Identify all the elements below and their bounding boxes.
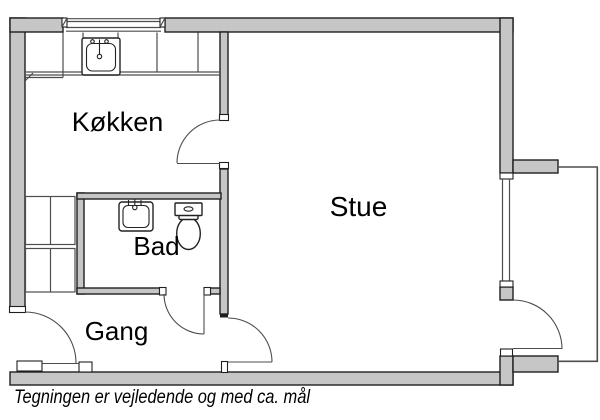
room-label-living-room: Stue bbox=[330, 191, 388, 222]
balcony-railing bbox=[558, 167, 598, 362]
kitchen-door bbox=[177, 115, 229, 169]
wall-stub-balcony-top bbox=[513, 160, 558, 173]
toilet-bowl bbox=[177, 218, 201, 250]
room-label-kitchen: Køkken bbox=[72, 107, 164, 137]
wall-bottom bbox=[10, 372, 513, 385]
kitchen-counter bbox=[25, 33, 220, 81]
floorplan-canvas: Køkken Stue Bad Gang Tegningen er vejled… bbox=[0, 0, 600, 420]
wardrobe-cabinets bbox=[26, 197, 76, 293]
kitchen-door-jamb-top bbox=[220, 115, 229, 121]
partition-lower bbox=[220, 169, 228, 314]
wall-right-upper bbox=[500, 18, 513, 173]
entry-door-jamb-right bbox=[79, 362, 92, 372]
partition-end-cap bbox=[220, 314, 228, 318]
entry-door-swing-arc bbox=[25, 312, 76, 363]
bath-wall-left bbox=[77, 193, 84, 294]
wall-block-window-sill bbox=[500, 287, 513, 300]
bathroom-door-jamb-right bbox=[204, 288, 211, 296]
entry-door-jamb-left bbox=[17, 361, 42, 371]
balcony-door bbox=[501, 300, 563, 356]
bath-wall-top bbox=[77, 193, 221, 199]
bathroom-door-swing-arc bbox=[164, 294, 204, 334]
partition-upper bbox=[220, 32, 228, 115]
kitchen-window bbox=[62, 18, 165, 31]
bathroom-sink bbox=[119, 200, 153, 232]
kitchen-sink bbox=[82, 38, 120, 75]
living-room-door bbox=[222, 318, 273, 373]
window-jamb-top bbox=[500, 173, 513, 179]
wall-top-main bbox=[165, 18, 513, 32]
entry-door bbox=[17, 312, 92, 372]
caption-text: Tegningen er vejledende og med ca. mål bbox=[14, 386, 311, 408]
wall-left bbox=[10, 18, 25, 312]
bathroom-door-jamb-left bbox=[160, 288, 167, 296]
living-room-door-jamb bbox=[222, 362, 228, 373]
toilet-tank bbox=[175, 203, 202, 216]
wall-stub-balcony-bottom bbox=[513, 356, 558, 372]
balcony-door-jamb bbox=[501, 349, 513, 356]
room-label-hallway: Gang bbox=[85, 316, 149, 346]
wall-step-bottom-right bbox=[500, 356, 513, 385]
wall-left-end-cap bbox=[10, 307, 26, 313]
bath-wall-bottom-stub bbox=[210, 288, 220, 294]
wall-top-left bbox=[10, 18, 63, 32]
bathroom-door bbox=[160, 288, 211, 335]
balcony-door-swing-arc bbox=[513, 300, 562, 349]
living-room-door-swing-arc bbox=[228, 318, 272, 362]
window-jamb-bottom bbox=[500, 281, 513, 287]
kitchen-door-swing-arc bbox=[177, 120, 220, 163]
floorplan-page: Køkken Stue Bad Gang Tegningen er vejled… bbox=[0, 0, 600, 420]
room-label-bathroom: Bad bbox=[133, 231, 179, 261]
counter-corner-mark bbox=[26, 73, 34, 81]
bath-wall-bottom bbox=[77, 288, 160, 294]
living-room-window bbox=[500, 173, 513, 287]
kitchen-door-jamb-bottom bbox=[220, 163, 229, 169]
